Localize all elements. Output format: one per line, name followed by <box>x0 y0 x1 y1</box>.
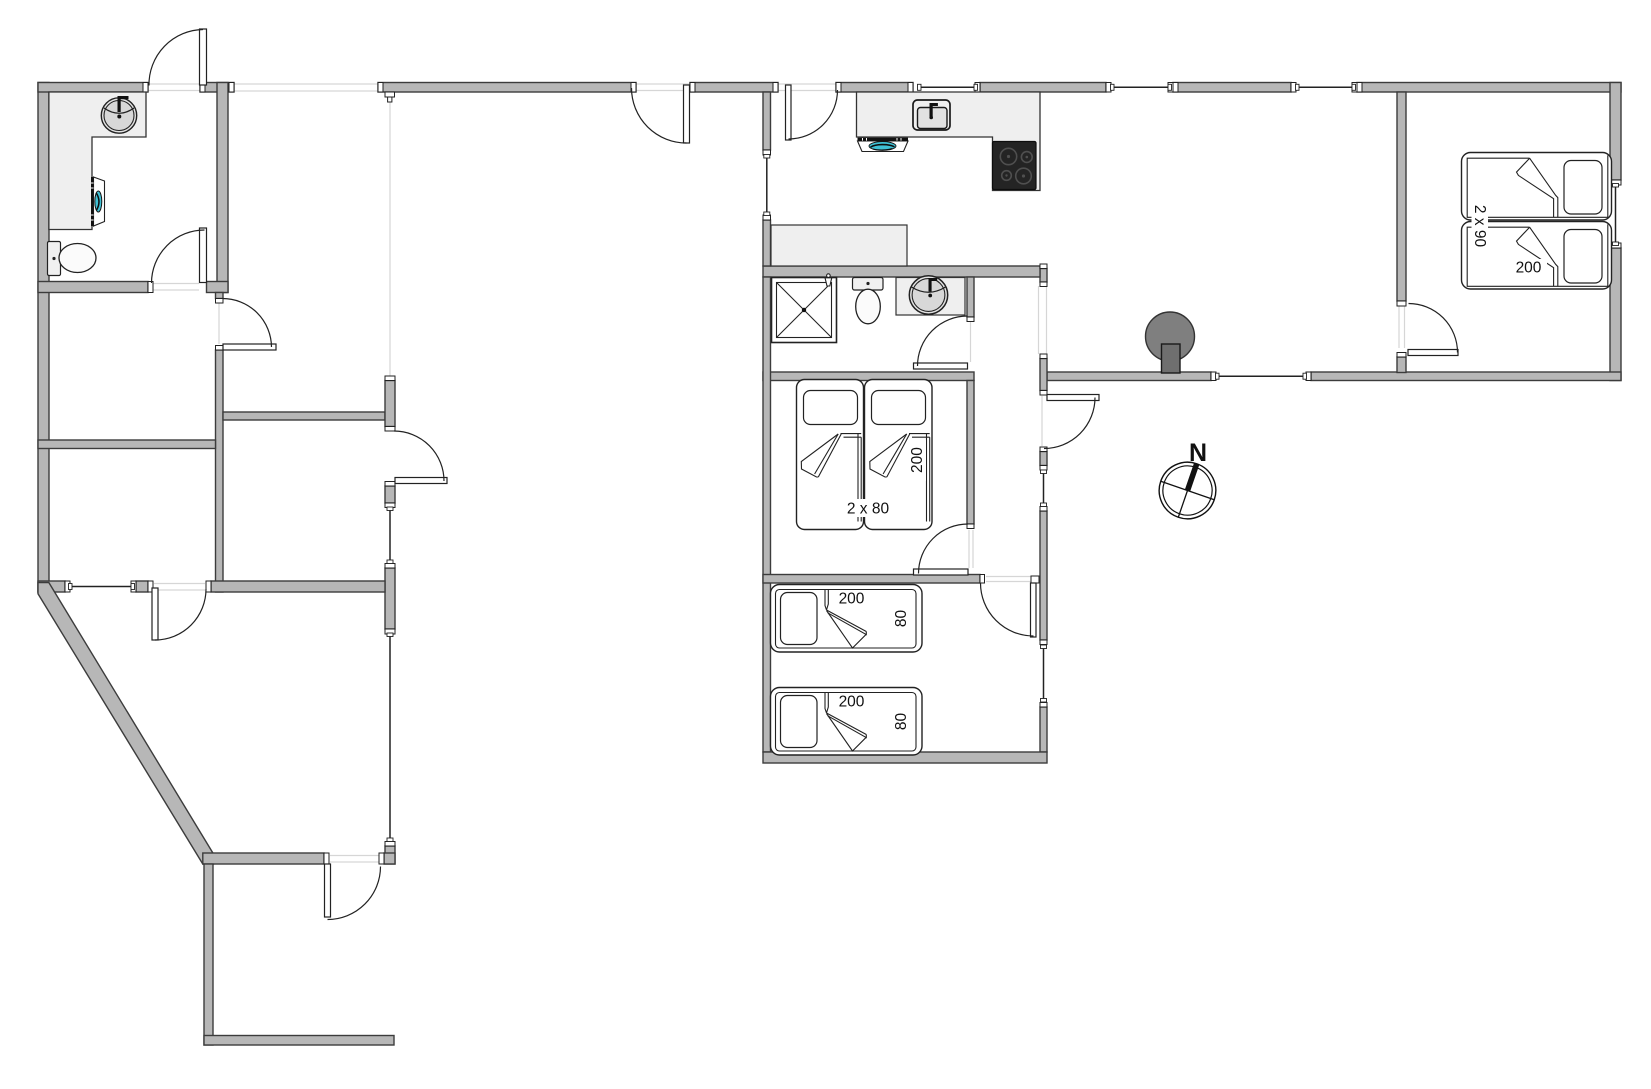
svg-text:80: 80 <box>893 610 910 628</box>
svg-text:2 x 80: 2 x 80 <box>847 501 890 518</box>
svg-text:N: N <box>1189 439 1207 467</box>
svg-text:200: 200 <box>909 447 926 473</box>
svg-text:200: 200 <box>1516 260 1542 277</box>
svg-text:200: 200 <box>839 694 865 711</box>
svg-text:2 x 90: 2 x 90 <box>1471 205 1488 248</box>
svg-text:200: 200 <box>839 591 865 608</box>
svg-text:80: 80 <box>893 713 910 731</box>
